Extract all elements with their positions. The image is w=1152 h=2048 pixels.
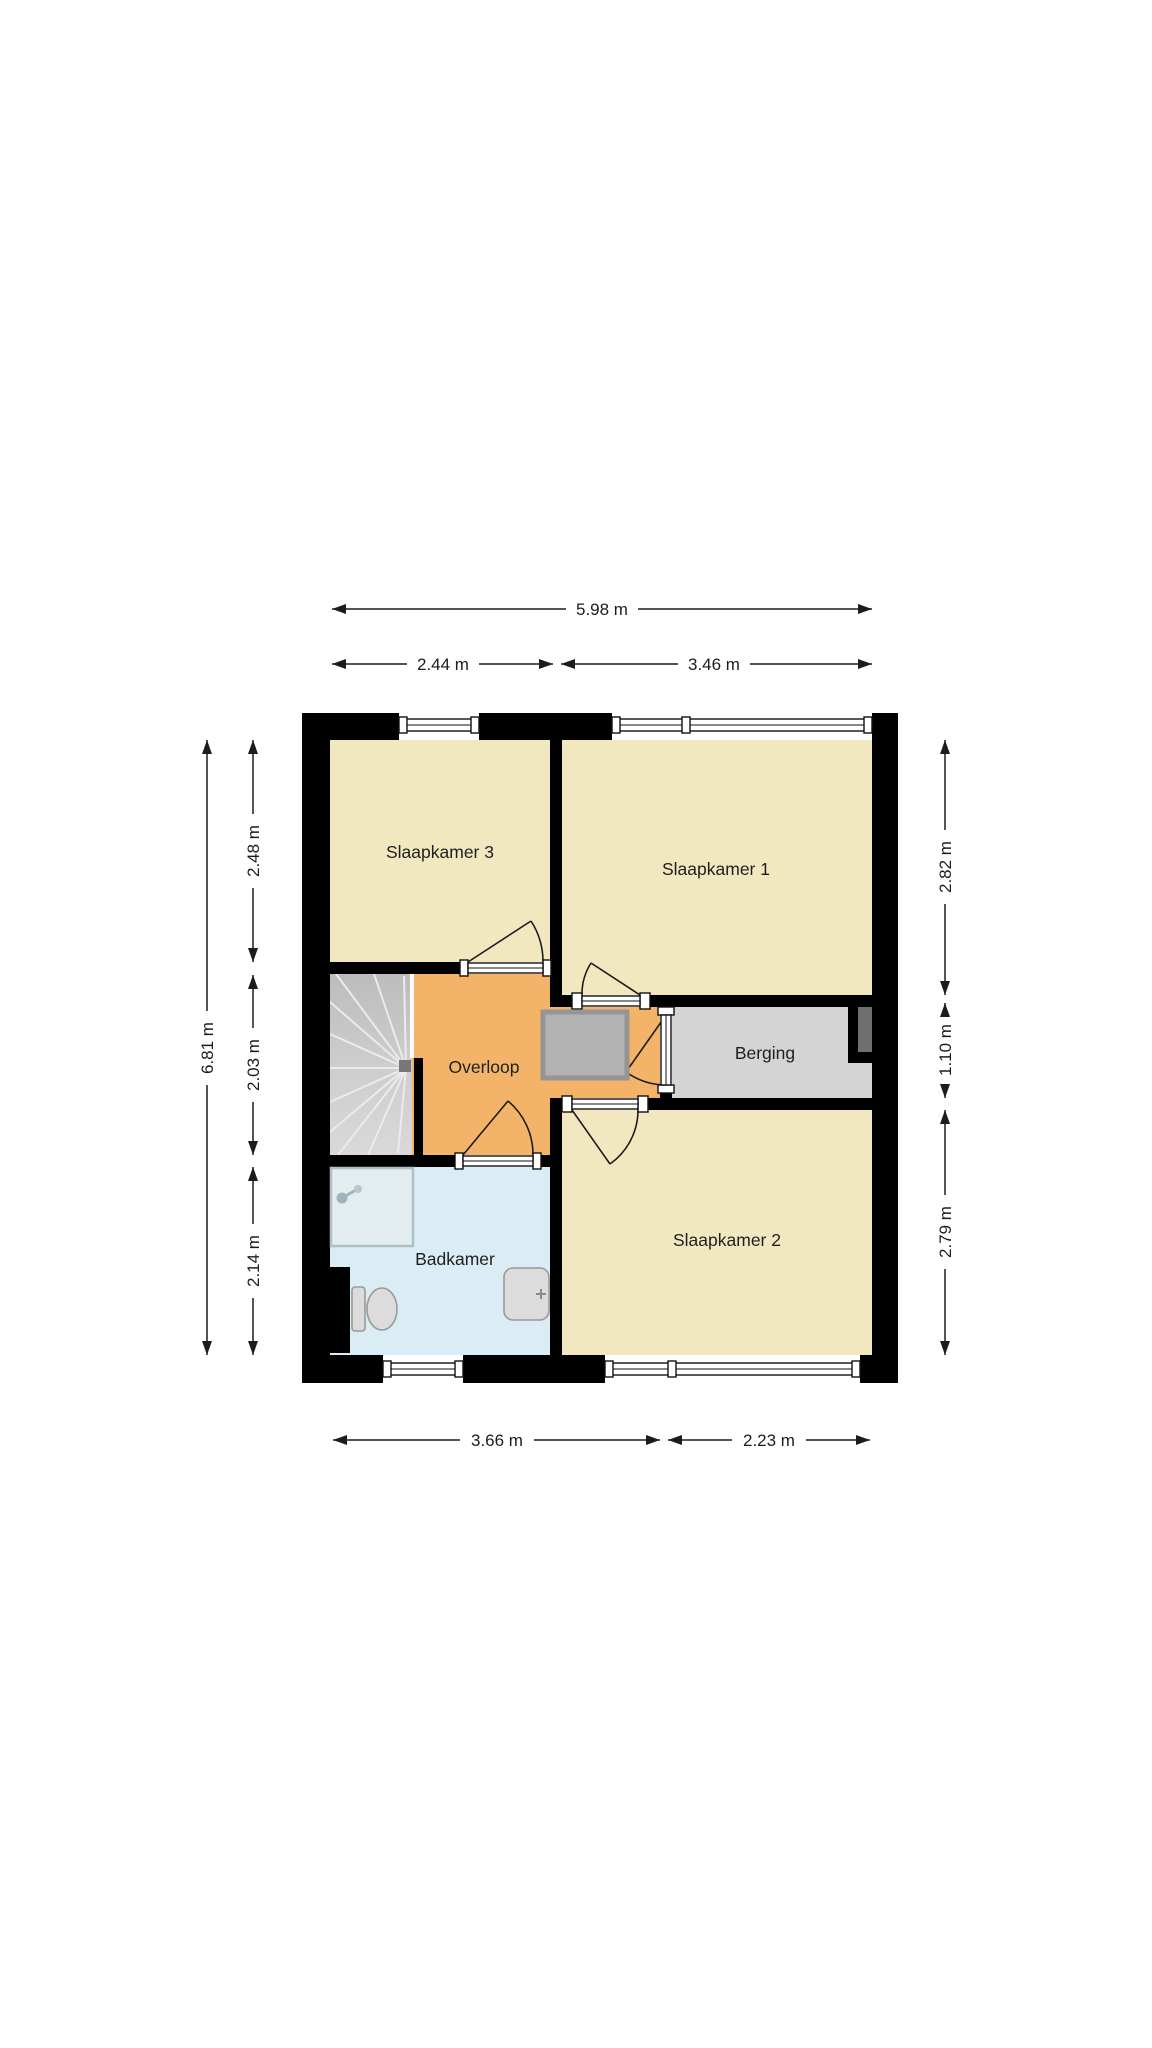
wall-s3-overloop-2 <box>551 962 562 974</box>
dimension-left-segment-1: 2.48 m <box>244 740 263 962</box>
wall-berging-recess-v <box>848 1007 858 1063</box>
room-label-slaapkamer-2: Slaapkamer 2 <box>673 1230 781 1250</box>
wall-exterior-top-2 <box>479 713 612 740</box>
window-jamb <box>471 717 479 733</box>
arrow-down-icon <box>248 1341 258 1355</box>
door-jamb <box>658 1085 674 1093</box>
staircase-edge <box>410 974 414 1058</box>
arrow-up-icon <box>940 1110 950 1124</box>
dimension-label: 2.82 m <box>936 841 955 893</box>
wall-exterior-bottom-3 <box>860 1355 898 1383</box>
door-jamb <box>533 1153 541 1169</box>
window-mullion <box>682 717 690 733</box>
dimension-label: 3.66 m <box>471 1431 523 1450</box>
wall-exterior-right <box>872 713 898 1383</box>
window-jamb <box>852 1361 860 1377</box>
wall-s1-berging <box>650 995 872 1007</box>
arrow-up-icon <box>248 740 258 754</box>
dimension-label: 6.81 m <box>198 1022 217 1074</box>
dimension-label: 2.48 m <box>244 825 263 877</box>
wall-toilet-stub <box>330 1267 350 1353</box>
window-jamb <box>455 1361 463 1377</box>
arrow-down-icon <box>940 1084 950 1098</box>
dimension-top-segment-1: 2.44 m <box>332 655 553 674</box>
duct-shaft <box>858 1007 872 1052</box>
toilet-tank <box>352 1287 365 1331</box>
arrow-right-icon <box>646 1435 660 1445</box>
arrow-up-icon <box>202 740 212 754</box>
window-top-slaapkamer1 <box>612 713 872 740</box>
arrow-right-icon <box>858 659 872 669</box>
dimension-left-segment-2: 2.03 m <box>244 975 263 1155</box>
room-label-slaapkamer-1: Slaapkamer 1 <box>662 859 770 879</box>
dimension-left-segment-3: 2.14 m <box>244 1167 263 1355</box>
closet <box>543 1012 627 1078</box>
arrow-up-icon <box>940 1003 950 1017</box>
shower <box>331 1168 413 1246</box>
wall-exterior-bottom-2 <box>463 1355 605 1383</box>
door-jamb <box>640 993 650 1009</box>
floorplan-image: Slaapkamer 3 Slaapkamer 1 Overloop Bergi… <box>0 0 1152 2048</box>
dimension-bottom-segment-2: 2.23 m <box>668 1431 870 1450</box>
dimension-left-total: 6.81 m <box>198 740 217 1355</box>
door-jamb <box>562 1096 572 1112</box>
wall-berging-door-bottom <box>660 1093 672 1098</box>
dimension-label: 2.44 m <box>417 655 469 674</box>
window-top-slaapkamer3 <box>399 713 479 740</box>
room-label-badkamer: Badkamer <box>415 1249 495 1269</box>
dimension-right-segment-3: 2.79 m <box>936 1110 955 1355</box>
arrow-down-icon <box>940 981 950 995</box>
dimension-right-segment-2: 1.10 m <box>936 1003 955 1098</box>
arrow-right-icon <box>856 1435 870 1445</box>
toilet <box>352 1287 397 1331</box>
dimension-label: 5.98 m <box>576 600 628 619</box>
arrow-up-icon <box>940 740 950 754</box>
dimension-label: 2.03 m <box>244 1039 263 1091</box>
dimension-bottom-segment-1: 3.66 m <box>333 1431 660 1450</box>
arrow-right-icon <box>858 604 872 614</box>
arrow-down-icon <box>202 1341 212 1355</box>
wall-overloop-badkamer-1 <box>330 1155 455 1167</box>
window-jamb <box>864 717 872 733</box>
arrow-left-icon <box>561 659 575 669</box>
arrow-up-icon <box>248 1167 258 1181</box>
wall-berging-s2 <box>648 1098 872 1110</box>
arrow-down-icon <box>940 1341 950 1355</box>
dimension-label: 3.46 m <box>688 655 740 674</box>
door-jamb <box>658 1007 674 1015</box>
door-jamb <box>543 960 551 976</box>
arrow-left-icon <box>332 604 346 614</box>
staircase <box>330 974 414 1155</box>
window-bottom-badkamer <box>383 1355 463 1383</box>
arrow-left-icon <box>668 1435 682 1445</box>
shower-faucet-knob <box>354 1185 362 1193</box>
window-jamb <box>612 717 620 733</box>
dimension-top-segment-2: 3.46 m <box>561 655 872 674</box>
window-jamb <box>383 1361 391 1377</box>
door-jamb <box>638 1096 648 1112</box>
dimension-label: 2.14 m <box>244 1235 263 1287</box>
dimension-right-segment-1: 2.82 m <box>936 740 955 995</box>
dimension-label: 2.23 m <box>743 1431 795 1450</box>
door-jamb <box>455 1153 463 1169</box>
window-bottom-slaapkamer2 <box>605 1355 860 1383</box>
wall-exterior-left <box>302 713 330 1383</box>
arrow-right-icon <box>539 659 553 669</box>
dimension-label: 1.10 m <box>936 1024 955 1076</box>
window-jamb <box>399 717 407 733</box>
dimension-top-total: 5.98 m <box>332 600 872 619</box>
toilet-bowl <box>367 1288 397 1330</box>
door-jamb <box>572 993 582 1009</box>
arrow-down-icon <box>248 948 258 962</box>
arrow-left-icon <box>332 659 346 669</box>
dimension-label: 2.79 m <box>936 1206 955 1258</box>
window-jamb <box>605 1361 613 1377</box>
room-label-slaapkamer-3: Slaapkamer 3 <box>386 842 494 862</box>
room-label-berging: Berging <box>735 1043 795 1063</box>
wall-s3-overloop-1 <box>330 962 460 974</box>
wall-s1-overloop-1 <box>550 995 572 1007</box>
door-jamb <box>460 960 468 976</box>
wall-exterior-bottom-1 <box>302 1355 383 1383</box>
arrow-down-icon <box>248 1141 258 1155</box>
room-label-overloop: Overloop <box>448 1057 519 1077</box>
window-mullion <box>668 1361 676 1377</box>
wall-badkamer-s2 <box>550 1098 562 1355</box>
wall-stair-stub <box>414 1058 423 1155</box>
wall-exterior-top-1 <box>302 713 399 740</box>
arrow-left-icon <box>333 1435 347 1445</box>
washbasin <box>504 1268 549 1320</box>
arrow-up-icon <box>248 975 258 989</box>
wall-overloop-badkamer-2 <box>541 1155 562 1167</box>
staircase-newel-post <box>399 1060 411 1072</box>
wall-berging-recess-h <box>858 1052 872 1063</box>
